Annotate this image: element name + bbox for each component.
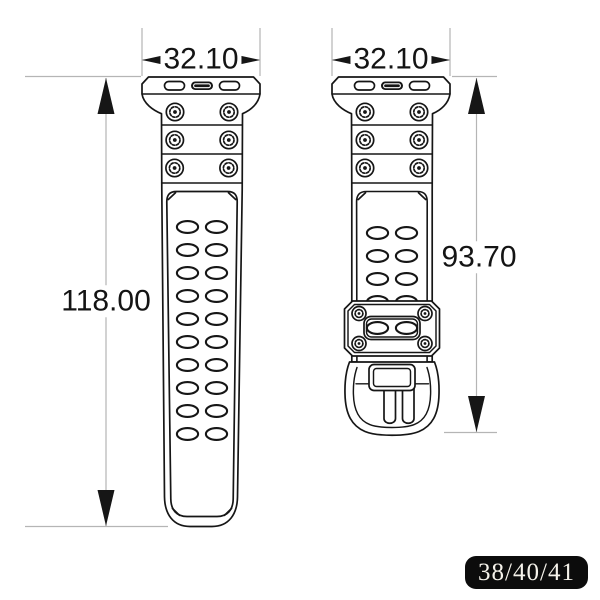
left-strap-drawing	[142, 77, 260, 527]
strap-buckle	[345, 362, 439, 435]
arrow-down-icon	[98, 490, 115, 526]
lug-slot-center	[191, 82, 213, 91]
arrow-up-icon	[98, 78, 115, 114]
right-strap-length-label: 93.70	[438, 241, 519, 273]
buckle-prong	[403, 386, 415, 423]
left-strap-width-label: 32.10	[160, 43, 241, 75]
right-strap-width-label: 32.10	[350, 43, 431, 75]
arrow-down-icon	[468, 396, 485, 432]
lug-slot-center	[381, 82, 403, 91]
strap-outline	[142, 77, 260, 527]
right-strap-drawing	[332, 77, 450, 435]
arrow-up-icon	[468, 78, 485, 114]
strap-keeper	[345, 301, 440, 356]
size-badge: 38/40/41	[465, 556, 588, 589]
buckle-prong	[384, 386, 396, 423]
watch-strap-spec-page: 32.10 32.10 118.00 93.70 38/40/41	[0, 0, 600, 600]
left-strap-length-label: 118.00	[58, 285, 154, 317]
